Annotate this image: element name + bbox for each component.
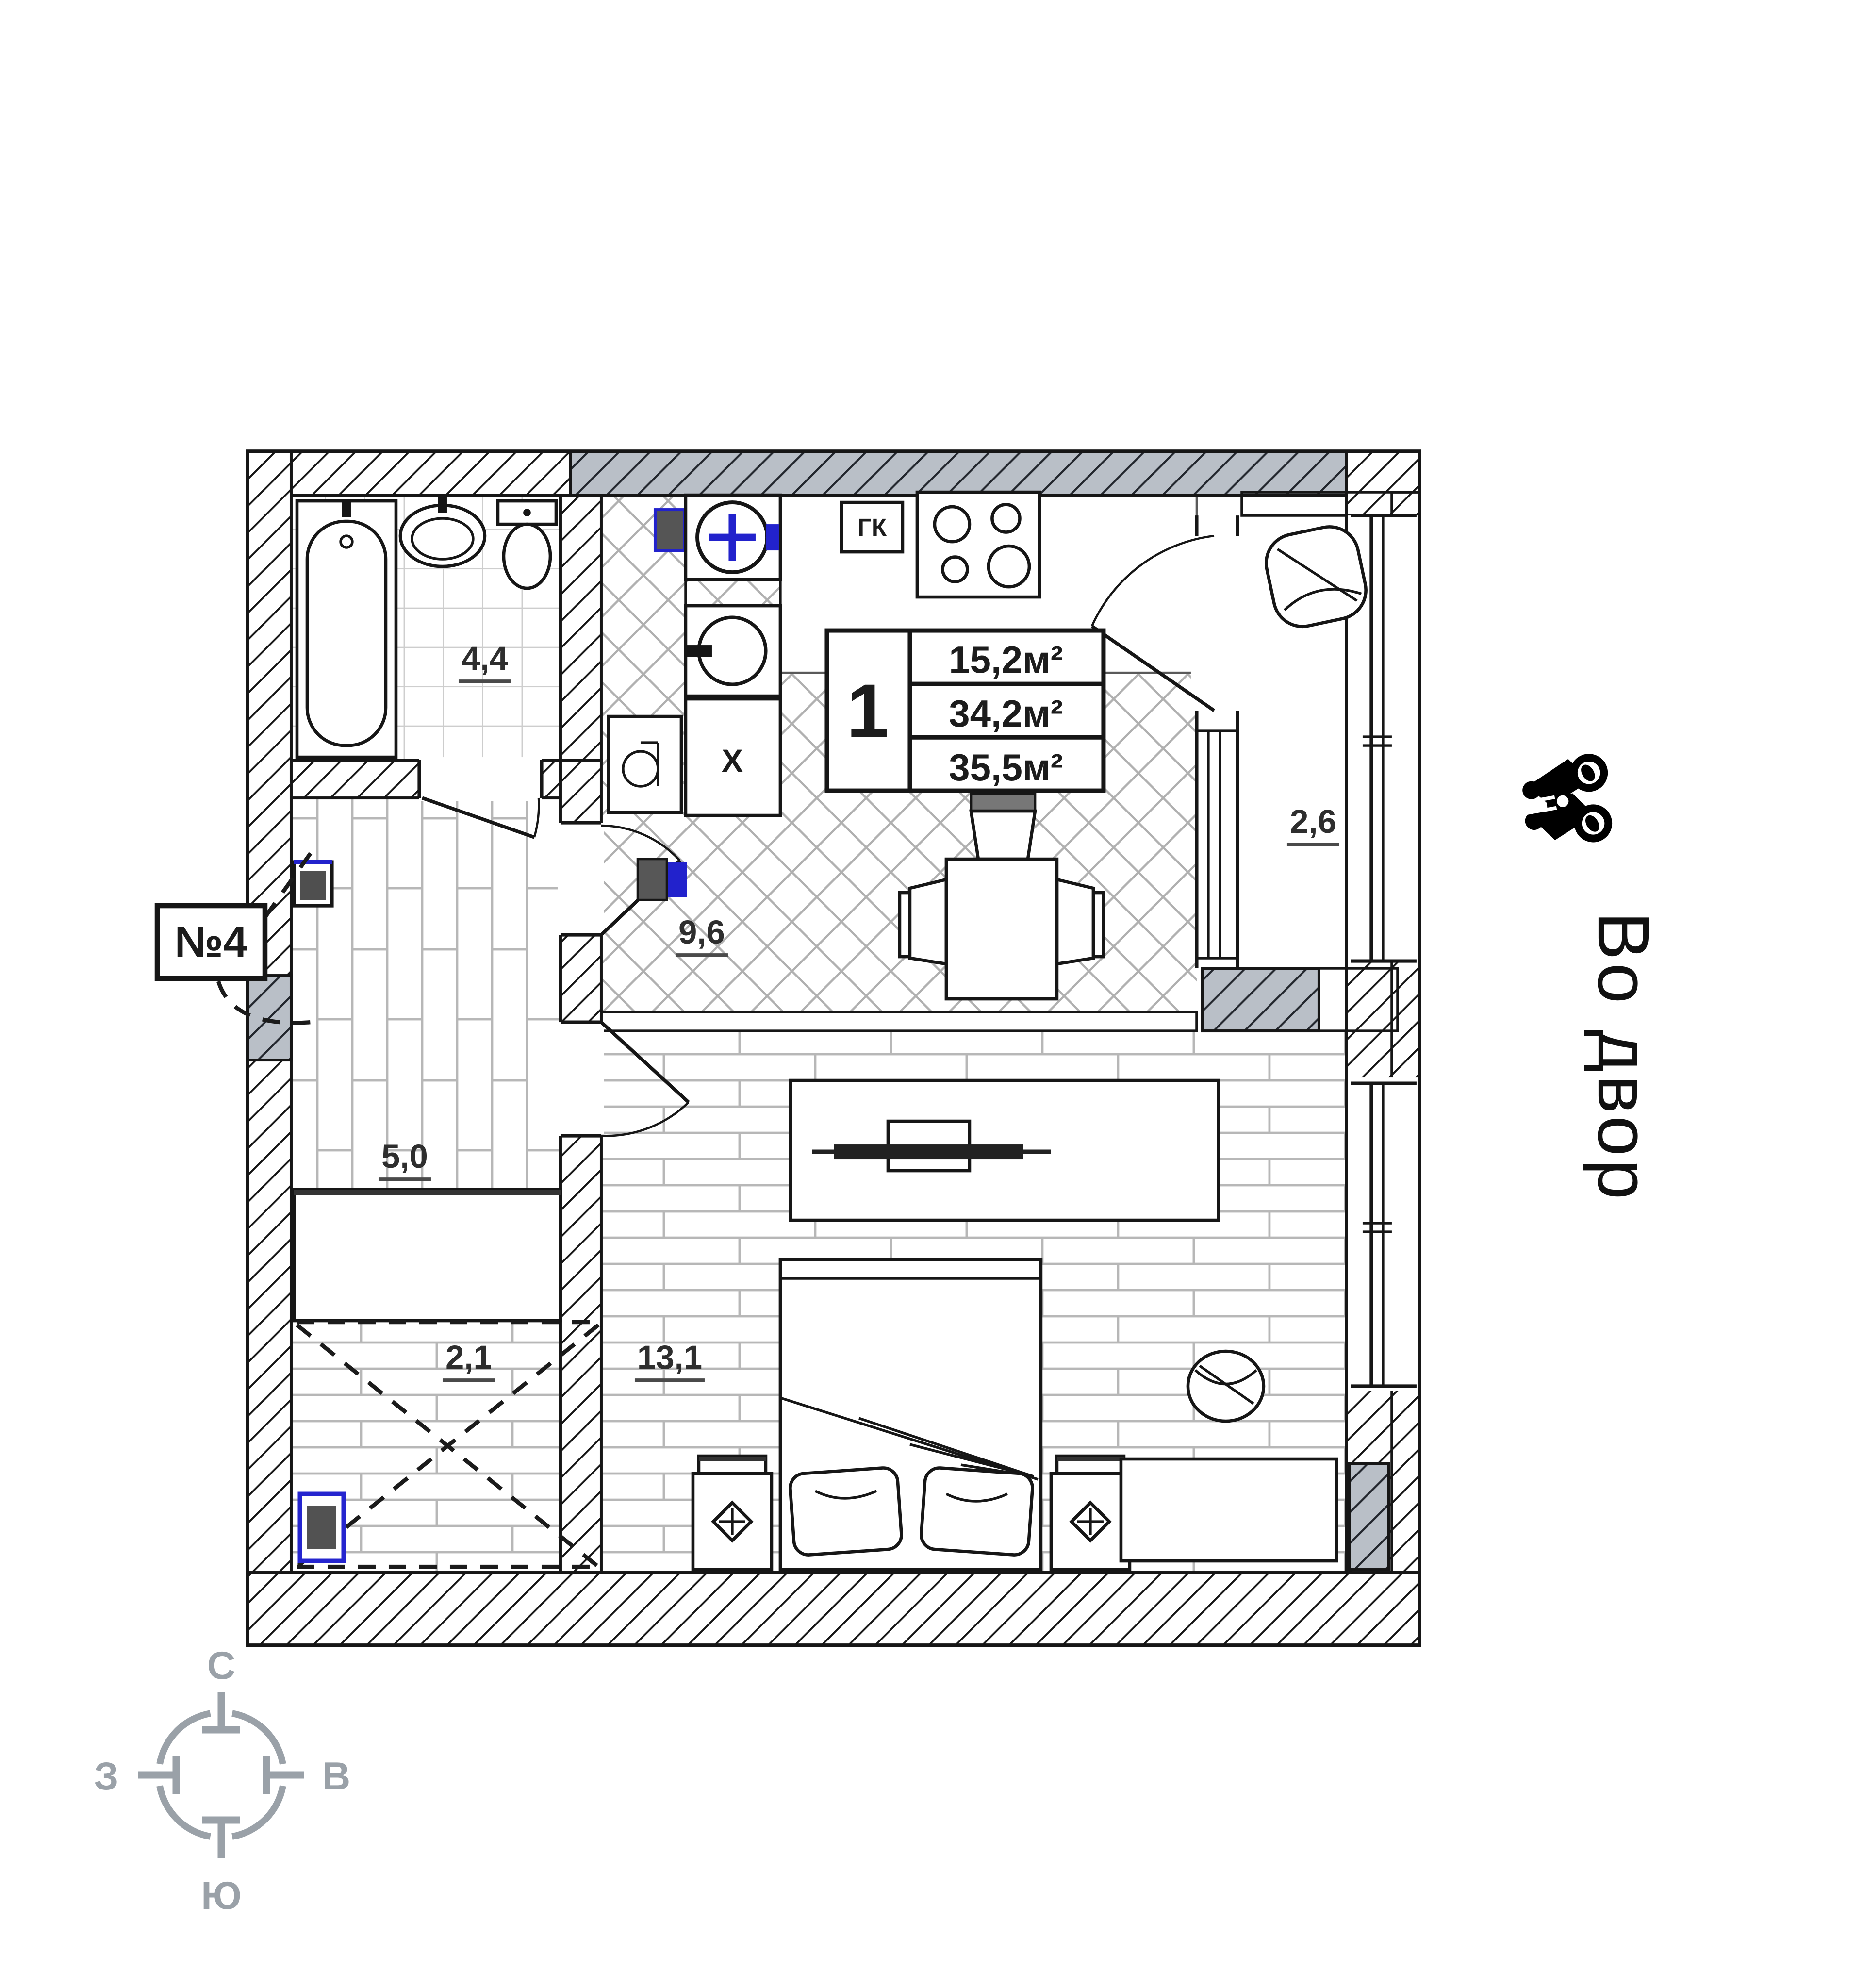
compass-south: Ю [201,1874,242,1918]
living-door-opening [558,1022,604,1136]
wall-top-gray [571,451,1419,495]
entrance-doorway [247,976,291,1060]
wall-bathroom-right [561,495,601,760]
table [946,859,1057,999]
stove [917,492,1039,597]
wall-balcony-bottom-gray [1203,968,1319,1031]
living-area: 15,2м² [949,638,1063,681]
kitchen-door-opening [558,823,604,935]
apartment-plan: X ГК [247,451,1419,1645]
compass: С В З Ю [94,1644,351,1918]
view-label: Во двор [1583,911,1665,1202]
riser-wardrobe [300,1494,344,1561]
total-area: 35,5м² [949,746,1063,789]
water-heater [609,716,681,812]
chair-top [971,794,1035,811]
apartment-area: 34,2м² [949,692,1063,735]
nightstand-left [693,1456,772,1570]
vent-shaft [655,510,684,550]
washing-machine [686,606,780,696]
riser-kitchen [638,859,687,900]
bathroom-label: 4,4 [462,640,508,677]
pillow-left [789,1467,902,1556]
balcony-label: 2,6 [1290,803,1336,840]
floor-plan-page: X ГК [0,0,1863,1988]
wardrobe-label: 2,1 [445,1339,492,1376]
nightstand-right [1051,1456,1130,1570]
bathroom-door-opening [419,757,542,801]
living-room-label: 13,1 [637,1339,702,1376]
view-direction: Во двор [1516,751,1665,1203]
kitchen-label: 9,6 [678,913,725,951]
hallway-cabinet [294,1190,561,1321]
riser-hallway [294,862,332,906]
fridge: X [686,699,780,815]
wall-bottom [247,1573,1419,1645]
wall-right-gray-pier [1350,1463,1389,1570]
compass-east: В [322,1755,350,1798]
binoculars-icon [1516,751,1620,854]
kitchen-sink-unit [686,495,780,580]
unit-info-box: 1 15,2м² 34,2м² 35,5м² [827,630,1104,791]
toilet [498,501,556,588]
tv [834,1144,1023,1159]
gas-cabinet: ГК [841,502,903,552]
desk [1121,1459,1336,1561]
balcony-door-opening [1191,536,1243,711]
wall-kitchen-bottom [601,1012,1197,1031]
compass-north: С [207,1644,235,1688]
gas-cabinet-label: ГК [857,514,887,541]
tv-cabinet [791,1080,1219,1220]
apartment-number: №4 [175,918,247,966]
bathtub [297,499,396,757]
pillow-right [920,1467,1033,1556]
bed [780,1259,1041,1570]
floor-plan-svg: X ГК [0,0,1863,1988]
hallway-floor [291,798,561,1190]
compass-west: З [94,1755,119,1798]
hallway-label: 5,0 [381,1138,428,1175]
fridge-label: X [722,743,743,779]
bedroom-chair [1188,1351,1264,1421]
rooms-count: 1 [847,669,889,753]
